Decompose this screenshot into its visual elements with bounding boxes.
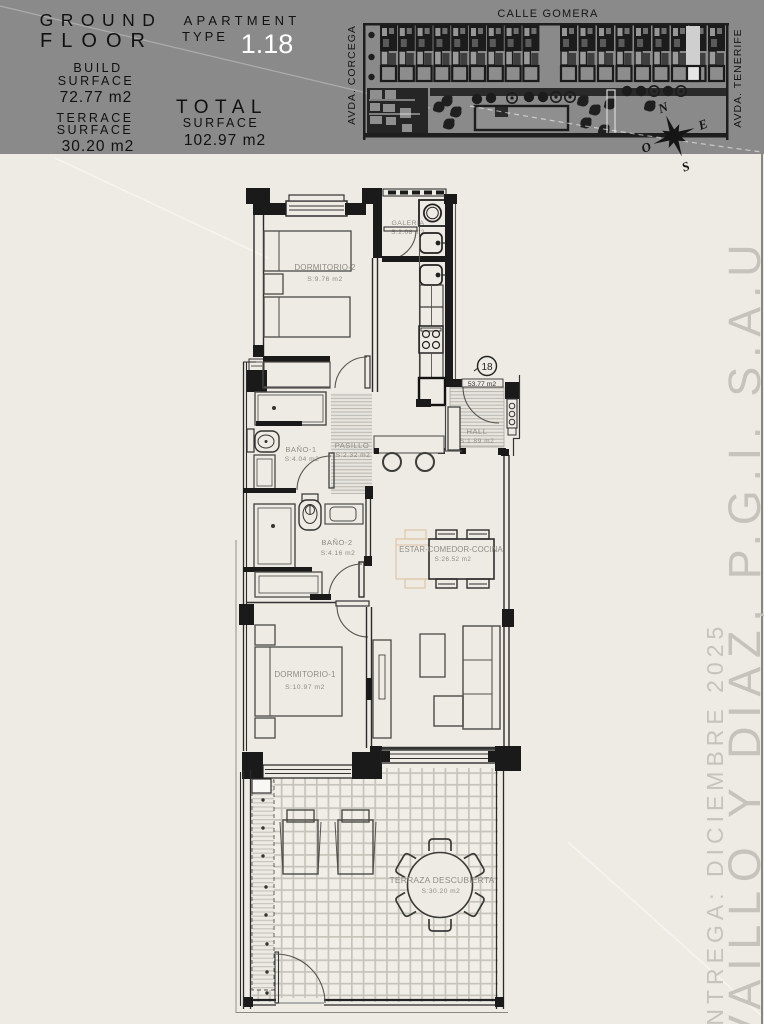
svg-text:TERRAZA DESCUBIERTA: TERRAZA DESCUBIERTA: [389, 875, 494, 885]
svg-text:GALERIA: GALERIA: [392, 220, 425, 227]
svg-text:S:4.04 m2: S:4.04 m2: [285, 456, 320, 463]
svg-text:SURFACE: SURFACE: [57, 123, 134, 137]
svg-text:72.77 m2: 72.77 m2: [60, 89, 133, 106]
svg-text:SURFACE: SURFACE: [183, 116, 260, 130]
svg-text:BUILD: BUILD: [73, 61, 122, 75]
svg-text:AVDA. CORCEGA: AVDA. CORCEGA: [346, 25, 358, 125]
svg-text:BAÑO-1: BAÑO-1: [285, 445, 316, 454]
svg-text:S:26.52 m2: S:26.52 m2: [435, 556, 472, 563]
svg-text:S:1.89 m2: S:1.89 m2: [460, 438, 495, 445]
svg-text:GROUND: GROUND: [40, 10, 163, 30]
svg-text:BAÑO-2: BAÑO-2: [321, 538, 352, 547]
svg-text:DORMITORIO-1: DORMITORIO-1: [274, 670, 336, 679]
svg-text:APARTMENT: APARTMENT: [184, 13, 301, 28]
svg-text:102.97 m2: 102.97 m2: [184, 132, 266, 149]
svg-text:PASILLO: PASILLO: [335, 441, 370, 450]
svg-text:1.18: 1.18: [241, 29, 294, 59]
svg-text:53.77 m2: 53.77 m2: [468, 381, 497, 388]
svg-text:ESTAR-COMEDOR-COCINA: ESTAR-COMEDOR-COCINA: [399, 545, 503, 554]
svg-text:S:10.97 m2: S:10.97 m2: [285, 684, 325, 691]
svg-text:S:30.20 m2: S:30.20 m2: [422, 888, 461, 895]
svg-text:FLOOR: FLOOR: [40, 30, 154, 52]
svg-text:AVDA. TENERIFE: AVDA. TENERIFE: [732, 28, 744, 127]
svg-text:30.20 m2: 30.20 m2: [62, 138, 135, 155]
svg-text:S:2.32 m2: S:2.32 m2: [336, 452, 371, 459]
svg-text:HALL: HALL: [467, 427, 488, 436]
svg-text:SURFACE: SURFACE: [58, 74, 135, 88]
svg-text:TOTAL: TOTAL: [176, 97, 268, 118]
svg-text:CALLE GOMERA: CALLE GOMERA: [497, 8, 598, 20]
svg-text:DORMITORIO-2: DORMITORIO-2: [294, 263, 356, 272]
svg-text:S:9.76 m2: S:9.76 m2: [307, 276, 342, 283]
svg-text:18: 18: [481, 362, 493, 373]
svg-text:VAILLO Y DIAZ, P.G.I. S.A.U: VAILLO Y DIAZ, P.G.I. S.A.U: [719, 236, 764, 1024]
svg-text:TYPE: TYPE: [182, 29, 228, 44]
svg-text:S:4.16 m2: S:4.16 m2: [321, 550, 356, 557]
